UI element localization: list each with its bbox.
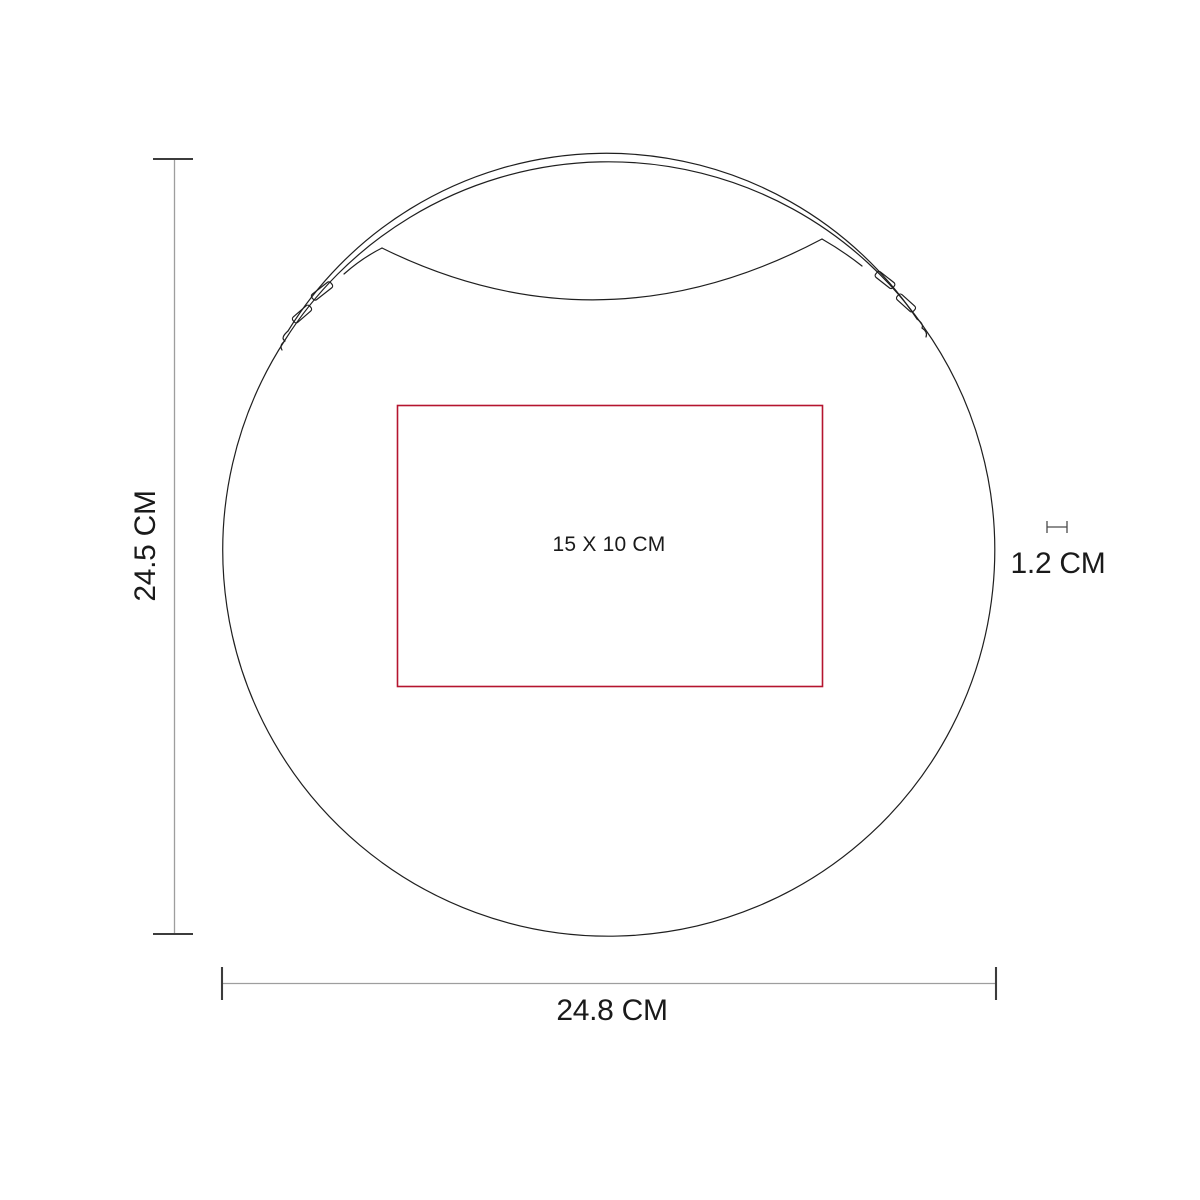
dimension-diagram-canvas: 24.5 CM 24.8 CM 1.2 CM 15 X 10 CM	[0, 0, 1200, 1200]
print-area-label: 15 X 10 CM	[524, 533, 694, 557]
thickness-dimension	[1047, 521, 1067, 533]
height-dimension-label: 24.5 CM	[130, 481, 162, 611]
thickness-dimension-label: 1.2 CM	[993, 548, 1123, 580]
width-dimension-label: 24.8 CM	[547, 995, 677, 1027]
bag-opening-curve	[382, 239, 822, 300]
strap-outer-edge	[288, 153, 917, 331]
bag-body-circle	[223, 326, 995, 936]
flap-left-merge	[344, 248, 382, 274]
bag-top-edge	[285, 162, 923, 340]
body-left-jog	[281, 341, 285, 350]
